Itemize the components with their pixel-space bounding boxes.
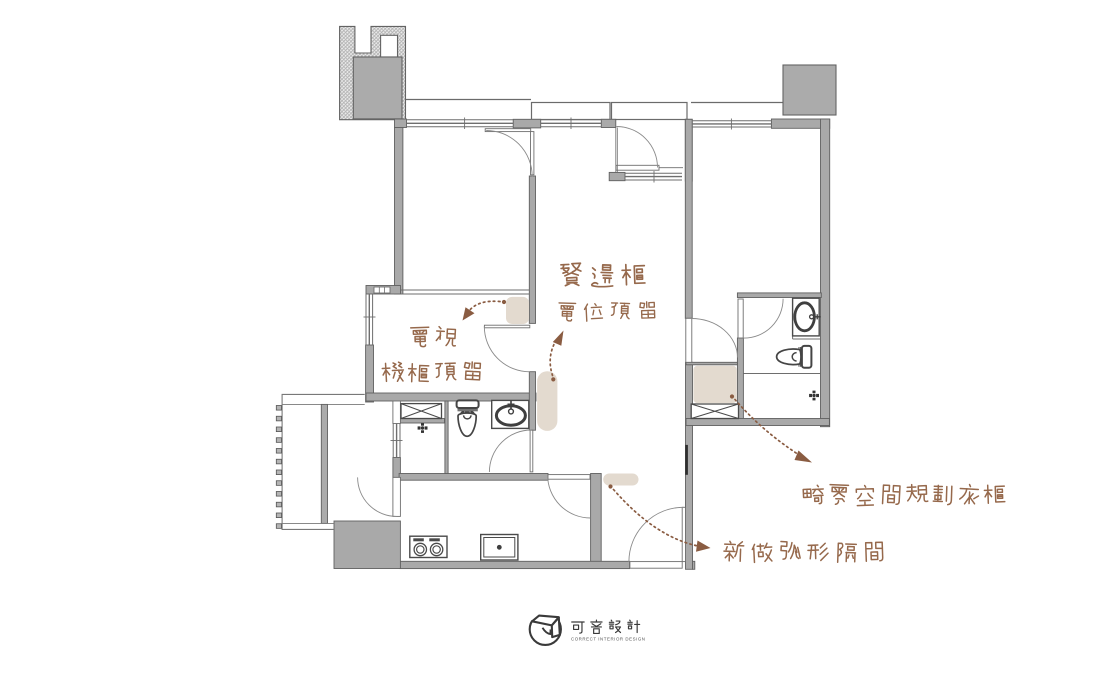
svg-text:CORRECT INTERIOR DESIGN: CORRECT INTERIOR DESIGN	[571, 636, 646, 641]
